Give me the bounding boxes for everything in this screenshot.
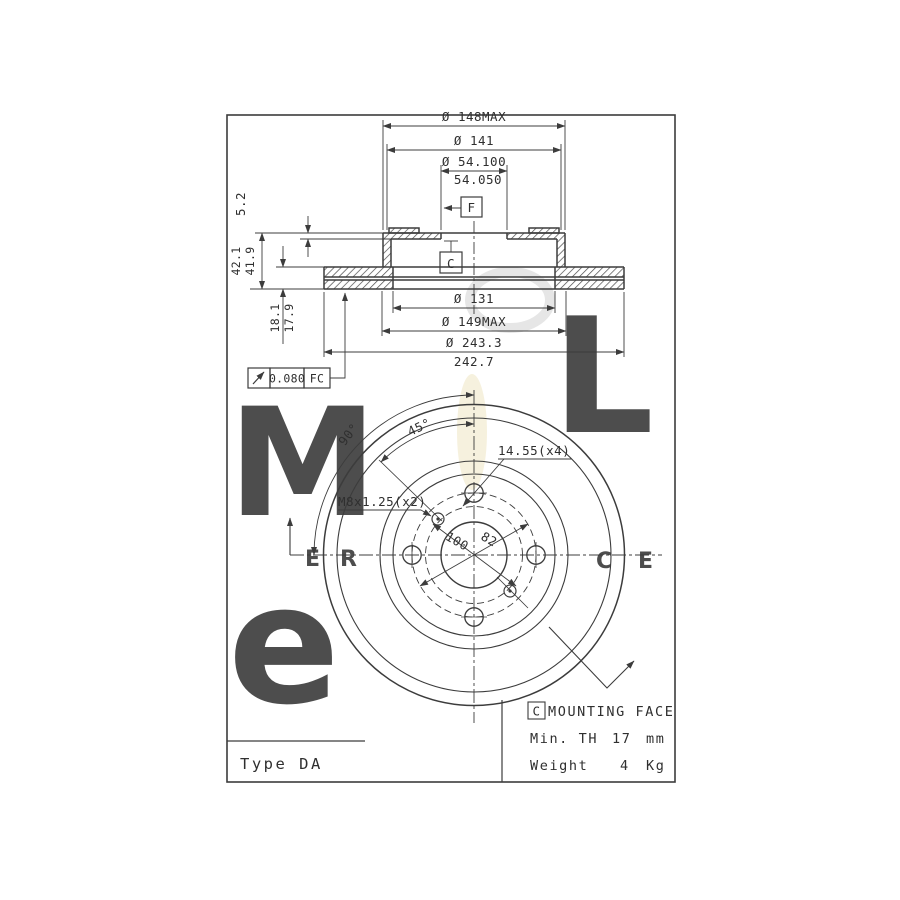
watermark-glyph: E xyxy=(305,547,320,572)
dim-179-label: 17.9 xyxy=(282,304,296,333)
dim-419-label: 41.9 xyxy=(243,247,257,276)
tolerance-frame: 0.080 FC xyxy=(248,293,345,388)
notes-min-th-label: Min. TH xyxy=(530,731,598,747)
notes-heading: MOUNTING FACE xyxy=(548,704,674,720)
thread-label: M8x1.25(x2) xyxy=(338,494,426,509)
tolerance-datum: FC xyxy=(310,372,324,386)
rotation-direction-arrow-icon xyxy=(549,627,634,688)
notes-min-th-value: 17 xyxy=(612,731,631,747)
datum-c-label: C xyxy=(447,256,455,271)
tolerance-leader xyxy=(330,293,345,378)
brake-disc-technical-drawing: M L e E R C E xyxy=(0,0,900,900)
dim-421-label: 42.1 xyxy=(229,247,243,276)
title-block: Type DA xyxy=(227,741,365,773)
dim-52-label: 5.2 xyxy=(233,192,248,216)
watermark-glyph: L xyxy=(552,283,654,470)
dim-181-label: 18.1 xyxy=(268,304,282,333)
bolt-hole-label: 14.55(x4) xyxy=(498,443,570,458)
watermark-glyph: e xyxy=(228,549,340,741)
datum-c: C xyxy=(440,241,462,273)
notes-weight-label: Weight xyxy=(530,758,588,774)
type-label: Type DA xyxy=(240,755,323,773)
notes-min-th-unit: mm xyxy=(646,731,665,747)
dim-2427-label: 242.7 xyxy=(454,354,494,369)
dim-148max-label: Ø 148MAX xyxy=(442,109,506,124)
drawing-page: M L e E R C E xyxy=(0,0,900,900)
watermark-streak xyxy=(457,374,487,490)
dim-54050-label: 54.050 xyxy=(454,172,502,187)
notes-weight-value: 4 xyxy=(620,758,630,774)
dim-2433-label: Ø 243.3 xyxy=(446,335,502,350)
watermark-glyph: E xyxy=(638,549,653,574)
dim-131-label: Ø 131 xyxy=(454,291,494,306)
notes-datum-ref: C xyxy=(532,704,540,719)
tolerance-value: 0.080 xyxy=(269,372,305,386)
dim-141-label: Ø 141 xyxy=(454,133,494,148)
watermark-glyph: R xyxy=(340,547,357,572)
datum-f-label: F xyxy=(467,200,475,215)
dim-54100-label: Ø 54.100 xyxy=(442,154,506,169)
notes-weight-unit: Kg xyxy=(646,758,665,774)
notes-block: C MOUNTING FACE Min. TH 17 mm Weight 4 K… xyxy=(502,700,674,782)
datum-f: F xyxy=(444,197,482,217)
dim-149max-label: Ø 149MAX xyxy=(442,314,506,329)
